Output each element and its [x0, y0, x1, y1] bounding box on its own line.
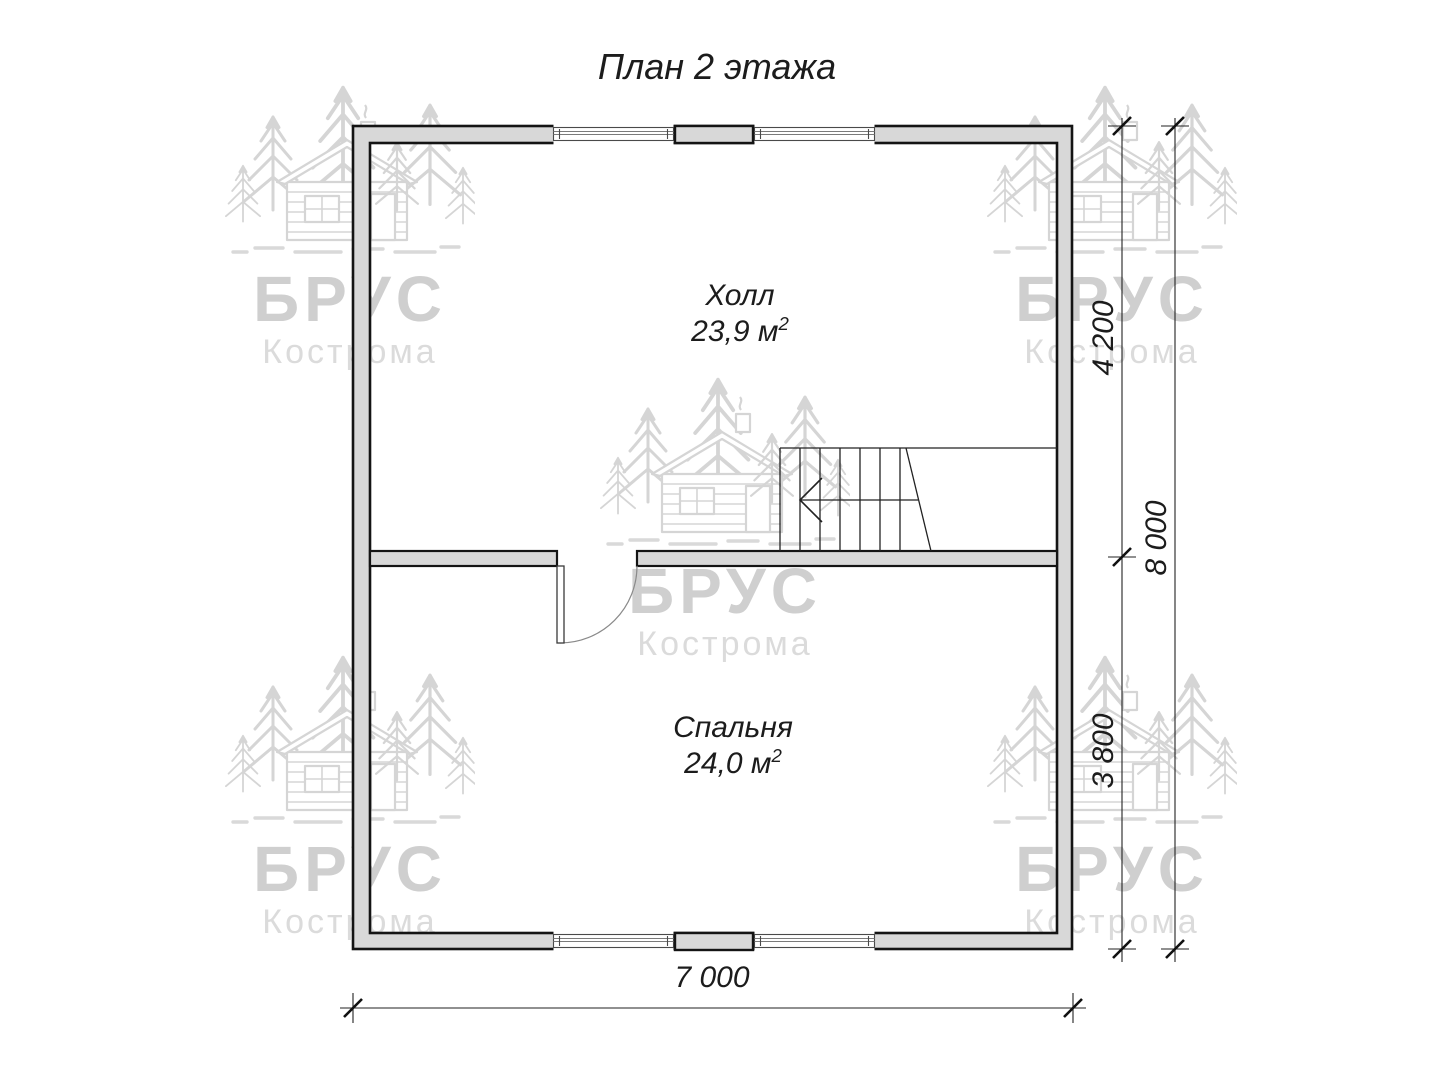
page-title: План 2 этажа — [497, 46, 937, 88]
dimension-label-bedroom-depth: 3 800 — [1086, 651, 1122, 851]
room-label-hall: Холл — [640, 279, 840, 313]
dimension-label-total-width: 7 000 — [562, 961, 862, 995]
interior-wall — [370, 551, 1057, 566]
room-label-bedroom: Спальня — [633, 711, 833, 745]
window-top-right — [755, 124, 875, 145]
room-area-bedroom-value: 24,0 м — [684, 747, 771, 780]
room-area-hall: 23,9 м2 — [640, 313, 840, 349]
window-bottom-right — [755, 931, 875, 952]
door-leaf — [557, 566, 564, 643]
door-swing-arc — [560, 566, 637, 643]
dimension-label-hall-depth: 4 200 — [1086, 238, 1122, 438]
wall-pier-bottom — [675, 933, 753, 950]
dim-line-bottom — [340, 993, 1086, 1023]
room-area-hall-value: 23,9 м — [691, 315, 778, 348]
exterior-walls — [353, 126, 1072, 949]
door — [557, 566, 637, 643]
wall-pier-top — [675, 126, 753, 143]
room-area-bedroom-sup: 2 — [771, 745, 781, 766]
dimension-label-total-depth: 8 000 — [1139, 438, 1175, 638]
room-area-bedroom: 24,0 м2 — [633, 745, 833, 781]
floor-plan-page: БРУС Кострома БРУС Кострома БРУС Костром… — [0, 0, 1440, 1080]
window-bottom-left — [554, 931, 674, 952]
staircase — [780, 448, 1057, 551]
window-top-left — [554, 124, 674, 145]
room-area-hall-sup: 2 — [778, 313, 788, 334]
floor-plan-drawing — [0, 0, 1440, 1080]
